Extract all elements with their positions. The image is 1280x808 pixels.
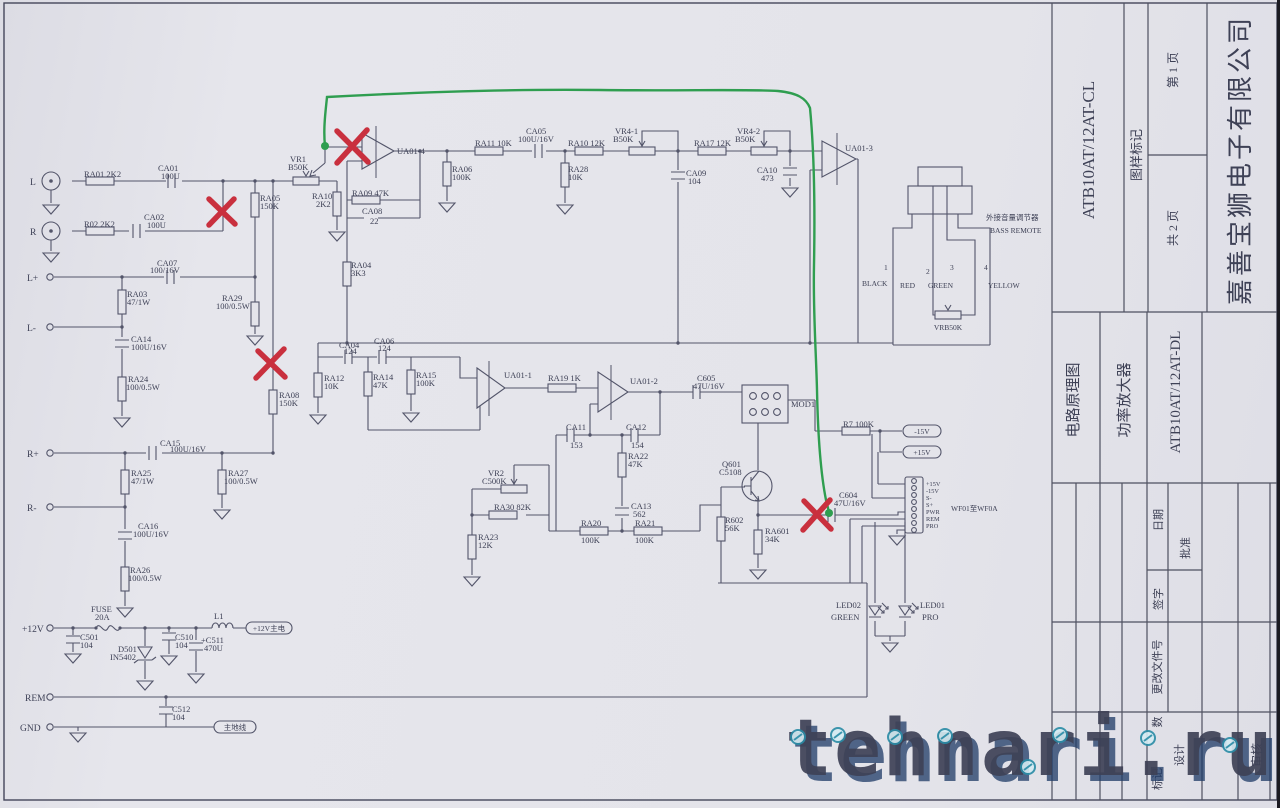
lbl-ra21-val: 100K [635, 535, 655, 545]
lbl-c604-val: 47U/16V [834, 498, 867, 508]
fuse-symbol [94, 626, 121, 631]
lbl-wire-yellow: YELLOW [988, 281, 1021, 290]
lbl-vr4-2-val: B50K [735, 134, 756, 144]
lbl-ca08-ref: CA08 [362, 206, 382, 216]
transistor-q601 [742, 471, 772, 501]
schematic-sheet: L R L+ L- R+ R- +12V REM GND RA01 2K2 CA… [0, 0, 1280, 808]
lbl-ca10-val: 473 [761, 173, 774, 183]
tb-product: 功率放大器 [1116, 362, 1133, 437]
lbl-ra03-val: 47/1W [127, 297, 150, 307]
net-tag-gnd: 主地线 [224, 722, 247, 732]
lbl-pin2: 2 [926, 267, 930, 276]
terminal-rem: REM [25, 694, 46, 704]
net-tag-m15: -15V [914, 427, 930, 436]
lbl-ca16-val: 100U/16V [133, 529, 170, 539]
lbl-wire-red: RED [900, 281, 916, 290]
lbl-ca02-val: 100U [147, 220, 166, 230]
lbl-ca06-val: 124 [378, 343, 392, 353]
lbl-ra27-val: 100/0.5W [224, 476, 258, 486]
lbl-ra30: RA30 82K [494, 502, 532, 512]
lbl-ua01-3: UA01-3 [845, 143, 873, 153]
opamp-ua01-2 [598, 365, 628, 420]
lbl-pin4: 4 [984, 263, 988, 272]
lbl-remote-cn: 外接音量调节器 [986, 212, 1039, 222]
lbl-ra19: RA19 1K [548, 373, 582, 383]
lbl-ra15-val: 100K [416, 378, 436, 388]
lbl-wire-green: GREEN [928, 281, 954, 290]
lbl-vr2-val: C500K [482, 476, 507, 486]
lbl-ra05-val: 150K [260, 201, 280, 211]
lbl-ra11: RA11 10K [475, 138, 513, 148]
title-block: ATB10AT/12AT-CL 图样标记 第 1 页 共 2 页 嘉善宝狮电子有… [1052, 3, 1277, 800]
tb-stamp-label: 图样标记 [1129, 129, 1144, 181]
lbl-wf01-note: WF01至WF0A [951, 504, 998, 513]
lbl-ca07-val: 100/16V [150, 265, 181, 275]
wf01-connector [905, 477, 923, 533]
lbl-pin1: 1 [884, 263, 888, 272]
tb-page-no: 第 1 页 [1166, 52, 1180, 88]
lbl-ra01: RA01 2K2 [84, 169, 121, 179]
wf-pin-sm: S- [926, 495, 932, 502]
lbl-ra10a-val: 2K2 [316, 199, 331, 209]
net-tag-p15: +15V [913, 448, 931, 457]
bass-remote-connector [908, 167, 972, 214]
terminal-lplus: L+ [27, 274, 38, 284]
lbl-r7: R7 100K [843, 419, 875, 429]
lbl-ra10b: RA10 12K [568, 138, 606, 148]
tb-doc-code-top: ATB10AT/12AT-CL [1079, 81, 1098, 219]
wf-pin-pro: PRO [926, 523, 939, 530]
opamp-ua01-3 [822, 133, 856, 185]
lbl-l1: L1 [214, 611, 223, 621]
terminal-l: L [30, 178, 36, 188]
diode-d501 [134, 647, 156, 663]
lbl-remote-en: BASS REMOTE [990, 226, 1042, 235]
red-x-annotation-3 [256, 349, 285, 378]
lbl-ra06-val: 100K [452, 172, 472, 182]
lbl-r02: R02 2K2 [84, 219, 115, 229]
wf-pin-rem: REM [926, 516, 940, 523]
lbl-wire-black: BLACK [862, 279, 888, 288]
terminal-r: R [30, 228, 37, 238]
lbl-led02-val: GREEN [831, 612, 859, 622]
lbl-ra20-ref: RA20 [581, 518, 601, 528]
wf-pin-sp: S+ [926, 502, 934, 509]
watermark: tehnari.ru tehnari.ru [785, 704, 1280, 800]
lbl-ca04-val: 124 [344, 346, 358, 356]
lbl-ua01-1: UA01-1 [504, 370, 532, 380]
lbl-c512-val: 104 [172, 712, 186, 722]
red-x-annotation-1 [209, 199, 235, 225]
tb-pages-total: 共 2 页 [1166, 210, 1180, 246]
lbl-ra17: RA17 12K [694, 138, 732, 148]
lbl-ra08-val: 150K [279, 398, 299, 408]
lbl-ca12-val: 154 [631, 440, 645, 450]
lbl-ca11-ref: CA11 [566, 422, 586, 432]
lbl-ca14-val: 100U/16V [131, 342, 168, 352]
lbl-ra601-val: 34K [765, 534, 781, 544]
lbl-ra25-val: 47/1W [131, 476, 154, 486]
lbl-ra24-val: 100/0.5W [126, 382, 160, 392]
junction-dots [71, 149, 881, 698]
lbl-ra28-val: 10K [568, 172, 584, 182]
net-tag-12v: +12V主电 [253, 623, 286, 633]
jack-r-input [42, 222, 60, 240]
lbl-ca05-val: 100U/16V [518, 134, 555, 144]
module-mod1 [742, 385, 788, 423]
lbl-ra12-val: 10K [324, 381, 340, 391]
tb-date: 日期 [1152, 509, 1165, 531]
lbl-vr4-1-val: B50K [613, 134, 634, 144]
tb-company: 嘉善宝狮电子有限公司 [1226, 15, 1255, 305]
terminal-rplus: R+ [27, 450, 39, 460]
lbl-ra21-ref: RA21 [635, 518, 655, 528]
lbl-ca11-val: 153 [570, 440, 583, 450]
tb-change-file: 更改文件号 [1150, 640, 1164, 695]
lbl-r602-val: 56K [725, 523, 741, 533]
terminal-gnd: GND [20, 724, 41, 734]
terminal-12v: +12V [22, 625, 44, 635]
lbl-c511-val: 470U [204, 643, 223, 653]
watermark-text: tehnari.ru [785, 704, 1275, 794]
lbl-ra29-val: 100/0.5W [216, 301, 250, 311]
lbl-d501-val: IN5402 [110, 652, 136, 662]
schematic-canvas: L R L+ L- R+ R- +12V REM GND RA01 2K2 CA… [0, 0, 1280, 808]
lbl-ca15-val: 100U/16V [170, 444, 207, 454]
green-dot-start [321, 142, 329, 150]
lbl-mod1: MOD1 [791, 399, 815, 409]
terminal-lminus: L- [27, 324, 36, 334]
lbl-vrb50k: VRB50K [934, 323, 963, 332]
lbl-led01-ref: LED01 [920, 600, 945, 610]
tb-approve: 批准 [1178, 537, 1192, 559]
wf-pin-pwr: PWR [926, 509, 940, 516]
lbl-vr1-val: B50K [288, 162, 309, 172]
lbl-ua01-4: UA01-4 [397, 146, 426, 156]
lbl-ra22-val: 47K [628, 459, 644, 469]
tb-doc-code-bottom: ATB10AT/12AT-DL [1168, 331, 1184, 454]
lbl-c510-val: 104 [175, 640, 189, 650]
tb-sign: 签字 [1151, 588, 1165, 610]
coil-l1 [212, 623, 233, 628]
lbl-ca08-val: 22 [370, 216, 379, 226]
lbl-fuse-val: 20A [95, 612, 111, 622]
lbl-ca09-val: 104 [688, 176, 702, 186]
lbl-ra04-val: 3K3 [351, 268, 366, 278]
wf-pin-m15: -15V [926, 488, 939, 495]
wf-pin-p15: +15V [926, 481, 941, 488]
jack-l-input [42, 172, 60, 190]
lbl-c501-val: 104 [80, 640, 94, 650]
lbl-q601-val: C5108 [719, 467, 742, 477]
lbl-c605-val: 47U/16V [693, 381, 726, 391]
lbl-led01-val: PRO [922, 612, 939, 622]
led01-symbol [899, 603, 918, 617]
lbl-ua01-2: UA01-2 [630, 376, 658, 386]
lbl-ra14-val: 47K [373, 380, 389, 390]
tb-doc-type: 电路原理图 [1065, 362, 1082, 437]
lbl-ra20-val: 100K [581, 535, 601, 545]
opamp-ua01-1 [477, 361, 505, 416]
lbl-ca01-val: 100U [161, 171, 180, 181]
lbl-ra26-val: 100/0.5W [128, 573, 162, 583]
lbl-ra09: RA09 47K [352, 188, 390, 198]
lbl-ca12-ref: CA12 [626, 422, 646, 432]
led02-symbol [869, 603, 888, 617]
terminal-rminus: R- [27, 504, 37, 514]
lbl-led02-ref: LED02 [836, 600, 861, 610]
lbl-pin3: 3 [950, 263, 954, 272]
green-dot-end [825, 509, 833, 517]
pot-vrb50k [935, 305, 961, 319]
lbl-ra23-val: 12K [478, 540, 494, 550]
